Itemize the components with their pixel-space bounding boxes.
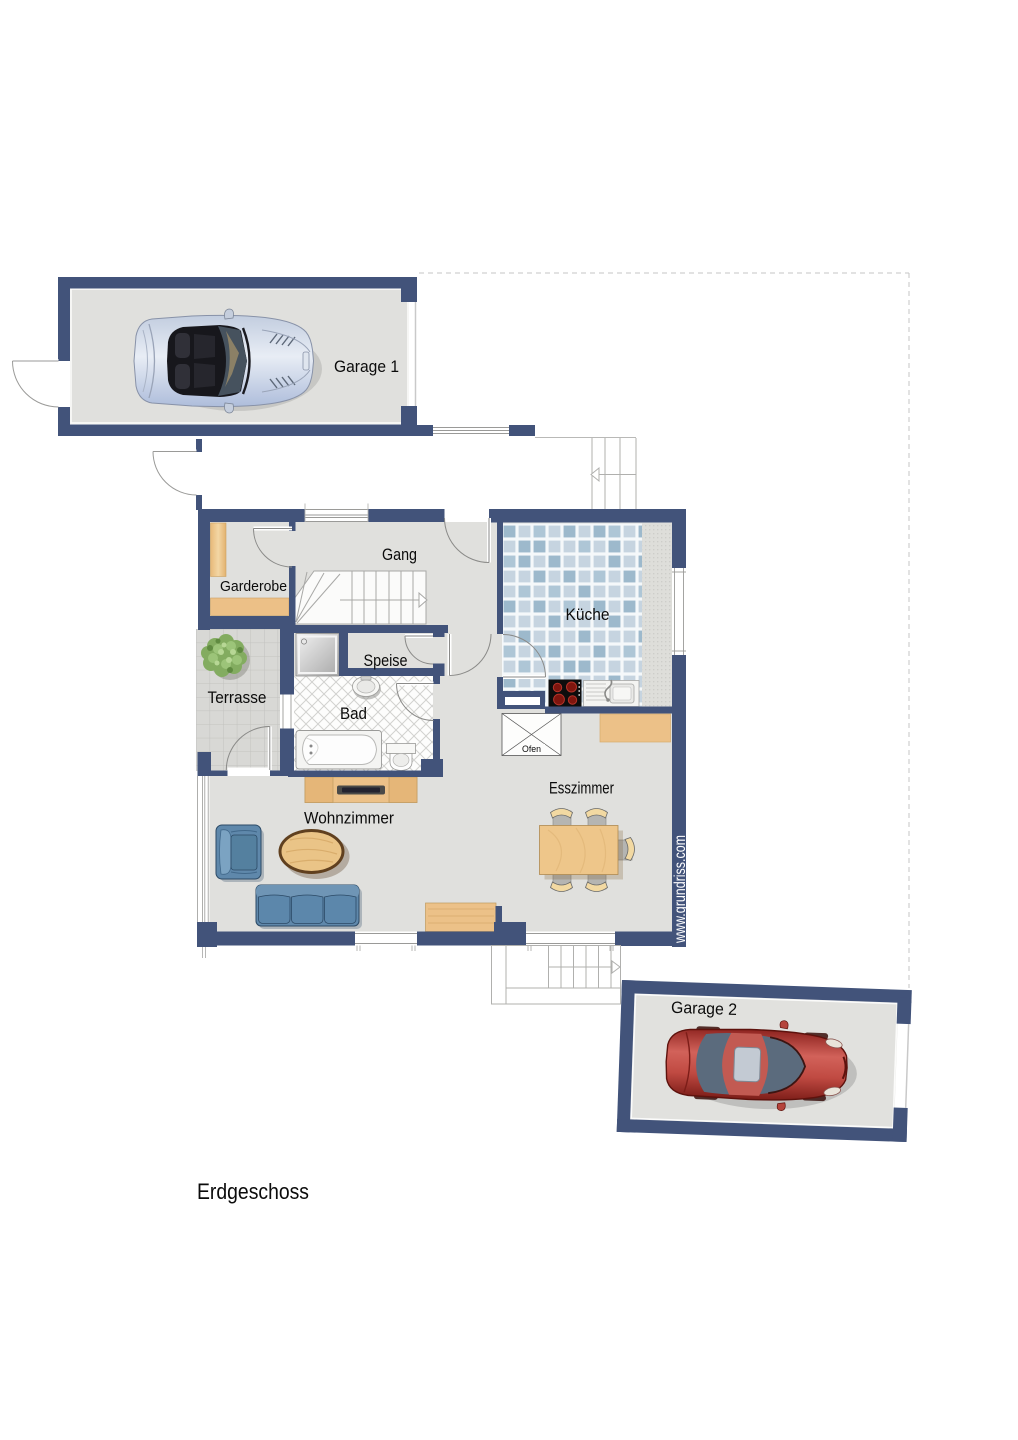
svg-text:Garage 1: Garage 1 [334, 358, 399, 376]
svg-text:www.grundriss.com: www.grundriss.com [672, 835, 689, 944]
svg-text:Esszimmer: Esszimmer [549, 780, 614, 798]
svg-text:Gang: Gang [382, 546, 417, 564]
svg-text:Ofen: Ofen [522, 744, 541, 754]
svg-text:Erdgeschoss: Erdgeschoss [197, 1179, 309, 1204]
svg-text:Wohnzimmer: Wohnzimmer [304, 810, 394, 828]
svg-text:Terrasse: Terrasse [208, 689, 267, 707]
svg-text:Bad: Bad [340, 705, 367, 723]
svg-text:Garage 2: Garage 2 [671, 999, 738, 1019]
svg-text:Garderobe: Garderobe [220, 578, 287, 595]
svg-text:Speise: Speise [364, 652, 408, 670]
svg-text:Küche: Küche [566, 606, 610, 624]
